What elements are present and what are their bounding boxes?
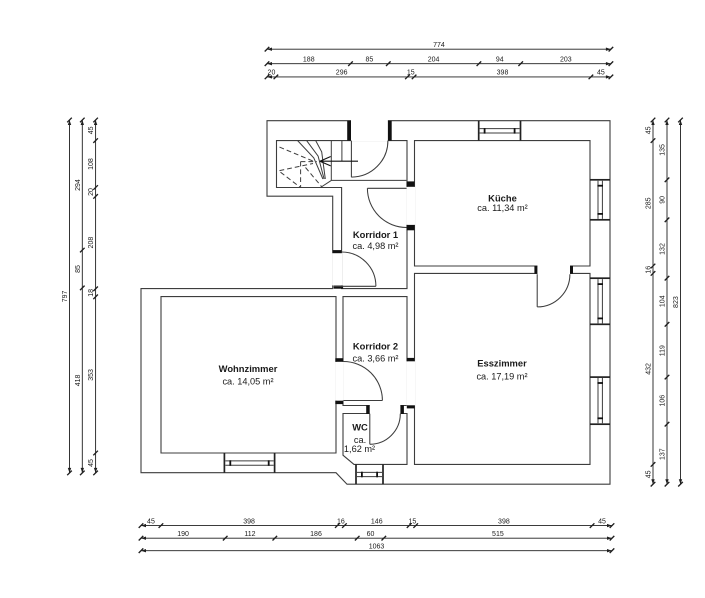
svg-text:ca. 17,19 m²: ca. 17,19 m²: [476, 371, 527, 381]
svg-text:45: 45: [598, 518, 606, 525]
svg-text:16: 16: [646, 266, 653, 274]
svg-text:208: 208: [88, 237, 95, 249]
svg-text:1,62 m²: 1,62 m²: [344, 444, 375, 454]
svg-text:190: 190: [177, 531, 189, 538]
svg-text:15: 15: [409, 518, 417, 525]
svg-text:45: 45: [88, 126, 95, 134]
svg-text:WC: WC: [352, 421, 368, 432]
svg-text:119: 119: [660, 345, 667, 356]
svg-text:418: 418: [75, 374, 82, 386]
svg-text:774: 774: [433, 42, 445, 49]
svg-text:398: 398: [243, 518, 255, 525]
svg-text:ca. 11,34 m²: ca. 11,34 m²: [477, 203, 527, 213]
svg-text:85: 85: [366, 56, 374, 63]
svg-text:ca. 14,05 m²: ca. 14,05 m²: [222, 376, 273, 386]
svg-text:18: 18: [88, 289, 95, 297]
svg-text:186: 186: [310, 531, 322, 538]
svg-text:45: 45: [147, 518, 155, 525]
svg-text:353: 353: [88, 369, 95, 381]
svg-text:135: 135: [660, 144, 667, 156]
svg-text:285: 285: [646, 197, 653, 209]
svg-text:Korridor 1: Korridor 1: [353, 229, 398, 240]
svg-text:16: 16: [337, 518, 345, 525]
svg-text:108: 108: [88, 158, 95, 170]
svg-text:106: 106: [660, 395, 667, 407]
svg-text:60: 60: [367, 531, 375, 538]
svg-text:398: 398: [497, 70, 509, 77]
svg-text:20: 20: [88, 188, 95, 196]
svg-text:112: 112: [244, 531, 255, 538]
svg-text:85: 85: [75, 265, 82, 273]
svg-text:104: 104: [660, 295, 667, 307]
svg-text:45: 45: [646, 470, 653, 478]
svg-text:146: 146: [371, 518, 383, 525]
svg-text:137: 137: [660, 448, 667, 460]
svg-text:Korridor 2: Korridor 2: [353, 340, 398, 351]
svg-text:823: 823: [673, 296, 680, 308]
svg-text:132: 132: [660, 243, 667, 255]
svg-text:ca. 3,66 m²: ca. 3,66 m²: [353, 353, 399, 363]
svg-text:Esszimmer: Esszimmer: [477, 357, 527, 368]
svg-text:45: 45: [597, 70, 605, 77]
svg-text:45: 45: [88, 459, 95, 467]
svg-text:203: 203: [560, 56, 572, 63]
svg-text:Wohnzimmer: Wohnzimmer: [219, 363, 278, 374]
svg-text:Küche: Küche: [488, 192, 517, 203]
svg-text:45: 45: [646, 126, 653, 134]
svg-text:20: 20: [268, 70, 276, 77]
svg-text:94: 94: [496, 56, 504, 63]
svg-text:1063: 1063: [369, 543, 385, 550]
svg-text:188: 188: [303, 56, 315, 63]
svg-text:432: 432: [646, 363, 653, 375]
svg-text:ca. 4,98 m²: ca. 4,98 m²: [353, 241, 399, 251]
svg-text:90: 90: [660, 196, 667, 204]
svg-text:296: 296: [336, 70, 348, 77]
svg-text:15: 15: [407, 70, 415, 77]
svg-text:204: 204: [428, 56, 440, 63]
svg-text:515: 515: [492, 531, 504, 538]
svg-text:398: 398: [498, 518, 510, 525]
svg-text:797: 797: [62, 291, 69, 303]
svg-text:294: 294: [75, 179, 82, 191]
